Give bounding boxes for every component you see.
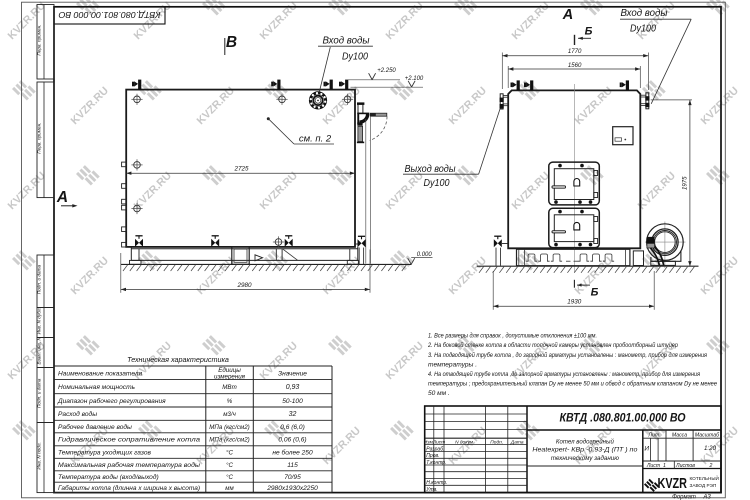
svg-text:Выход воды: Выход воды (405, 164, 457, 175)
svg-text:50 мм .: 50 мм . (428, 390, 450, 397)
svg-text:KVZR: KVZR (658, 476, 688, 492)
svg-text:Лист: Лист (646, 463, 661, 469)
svg-text:А: А (56, 189, 68, 206)
svg-text:N докум.: N докум. (455, 439, 474, 445)
svg-text:+2.250: +2.250 (377, 68, 396, 74)
svg-text:Масштаб: Масштаб (695, 432, 720, 438)
svg-text:Техническая характеристика: Техническая характеристика (127, 355, 229, 364)
svg-text:Диапазон рабочего регулировани: Диапазон рабочего регулирования (57, 397, 166, 405)
svg-text:Пров.: Пров. (426, 453, 439, 459)
svg-text:4. На отводящей трубе котла ,: 4. На отводящей трубе котла ,до запорной… (428, 370, 700, 378)
svg-text:2. На боковой стенке котла в: 2. На боковой стенке котла в области топ… (427, 341, 678, 349)
svg-text:И: И (644, 446, 649, 453)
svg-text:Значение: Значение (278, 371, 307, 378)
svg-text:2: 2 (709, 463, 713, 469)
svg-text:Подп. и дата: Подп. и дата (37, 264, 42, 294)
svg-text:%: % (227, 398, 233, 405)
svg-text:Подп.: Подп. (490, 439, 503, 445)
svg-text:Габариты котла (длинна х ширин: Габариты котла (длинна х ширина х высота… (58, 484, 200, 492)
svg-text:3. На подводящей трубе котла: 3. На подводящей трубе котла , до запорн… (428, 351, 707, 359)
svg-text:Б: Б (591, 286, 599, 298)
svg-text:м3/ч: м3/ч (223, 411, 236, 418)
svg-text:Инв. N дубл.: Инв. N дубл. (37, 307, 42, 334)
svg-text:не более 250: не более 250 (272, 448, 313, 456)
svg-text:2980: 2980 (236, 282, 252, 289)
svg-text:Котел водогрейный: Котел водогрейный (556, 438, 615, 445)
svg-text:1975: 1975 (682, 176, 689, 190)
svg-text:Т.контр.: Т.контр. (426, 460, 446, 466)
svg-text:Взам. инв. N: Взам. инв. N (37, 337, 42, 365)
svg-text:Наименование показателя: Наименование показателя (58, 371, 143, 378)
svg-text:Инв. N подл.: Инв. N подл. (37, 442, 42, 469)
svg-text:МПа (кгс/см2): МПа (кгс/см2) (209, 424, 249, 431)
svg-text:70/95: 70/95 (284, 474, 301, 481)
svg-text:Температура воды (вход/выход): Температура воды (вход/выход) (58, 473, 159, 481)
svg-text:Номинальная мощность: Номинальная мощность (58, 384, 136, 391)
svg-text:Подп. и дата: Подп. и дата (37, 378, 42, 408)
svg-text:см. п. 2: см. п. 2 (299, 133, 332, 144)
svg-text:температуры ; предохранительны: температуры ; предохранительный клапан D… (428, 380, 717, 388)
svg-text:°С: °С (226, 449, 233, 456)
svg-text:Перв. примен.: Перв. примен. (37, 24, 42, 55)
svg-text:+2.100: +2.100 (405, 76, 424, 82)
svg-text:°С: °С (226, 462, 233, 469)
svg-text:0,6 (6,0): 0,6 (6,0) (280, 424, 305, 431)
svg-text:1560: 1560 (568, 62, 582, 69)
svg-text:температуры .: температуры . (428, 361, 477, 368)
svg-text:2725: 2725 (233, 166, 249, 173)
svg-text:Максимальная рабочая температу: Максимальная рабочая температура воды (58, 461, 200, 469)
svg-text:техническому заданию: техническому заданию (551, 456, 619, 462)
svg-text:0.000: 0.000 (417, 252, 433, 258)
svg-text:32: 32 (289, 411, 297, 418)
svg-text:Гидравлическое сопративление к: Гидравлическое сопративление котла (58, 436, 200, 444)
svg-text:мм: мм (225, 485, 234, 492)
svg-text:°С: °С (226, 474, 233, 481)
svg-text:1770: 1770 (568, 48, 582, 55)
svg-text:МВт: МВт (222, 384, 236, 391)
svg-text:1. Все размеры для справок ,: 1. Все размеры для справок , допустимые … (428, 331, 597, 339)
svg-text:КВТД .080.801.00.000 ВО: КВТД .080.801.00.000 ВО (560, 410, 687, 424)
svg-text:Dy100: Dy100 (342, 52, 368, 63)
svg-text:Н.контр.: Н.контр. (426, 480, 447, 486)
svg-text:А3: А3 (702, 494, 711, 500)
svg-text:Рабочее давление воды: Рабочее давление воды (58, 423, 132, 431)
svg-text:Температура уходящих газов: Температура уходящих газов (58, 448, 151, 456)
svg-text:Вход воды: Вход воды (323, 36, 371, 47)
svg-text:измерения: измерения (214, 374, 246, 381)
svg-text:Лит.: Лит. (647, 432, 660, 438)
svg-text:Лист: Лист (432, 439, 445, 445)
svg-text:Heatexpert- КВр -0,93-Д (ПТ ): Heatexpert- КВр -0,93-Д (ПТ ) по (532, 448, 638, 454)
svg-text:Разраб.: Разраб. (426, 446, 444, 452)
svg-text:ЗАВОД РЭП: ЗАВОД РЭП (690, 483, 717, 488)
svg-text:Расход воды: Расход воды (58, 410, 97, 418)
svg-text:Утв.: Утв. (426, 487, 437, 493)
svg-text:КВТД.080.801.00.000 ВО: КВТД.080.801.00.000 ВО (58, 10, 160, 20)
svg-text:Перв. примен.: Перв. примен. (37, 123, 42, 154)
svg-text:Листов: Листов (675, 463, 695, 469)
svg-text:1930: 1930 (567, 298, 582, 305)
svg-text:Dy100: Dy100 (424, 178, 450, 189)
svg-text:КОТЕЛЬНЫЙ: КОТЕЛЬНЫЙ (690, 474, 719, 481)
svg-text:Б: Б (585, 25, 593, 37)
svg-text:1:20: 1:20 (704, 445, 717, 452)
svg-text:50-100: 50-100 (282, 398, 303, 405)
svg-text:В: В (226, 34, 237, 51)
svg-text:Дата: Дата (510, 439, 524, 445)
svg-text:115: 115 (287, 462, 298, 469)
svg-text:0,93: 0,93 (286, 384, 300, 391)
svg-text:Масса: Масса (672, 432, 687, 438)
svg-text:Вход воды: Вход воды (621, 8, 669, 19)
svg-text:2980х1930х2250: 2980х1930х2250 (266, 485, 318, 492)
svg-text:1: 1 (663, 463, 666, 469)
svg-text:Dy100: Dy100 (630, 24, 656, 35)
svg-text:МПа (кгс/см2): МПа (кгс/см2) (209, 437, 249, 444)
svg-text:0,06 (0,6): 0,06 (0,6) (278, 437, 306, 444)
svg-text:А: А (562, 7, 573, 23)
svg-text:Формат: Формат (672, 494, 696, 500)
